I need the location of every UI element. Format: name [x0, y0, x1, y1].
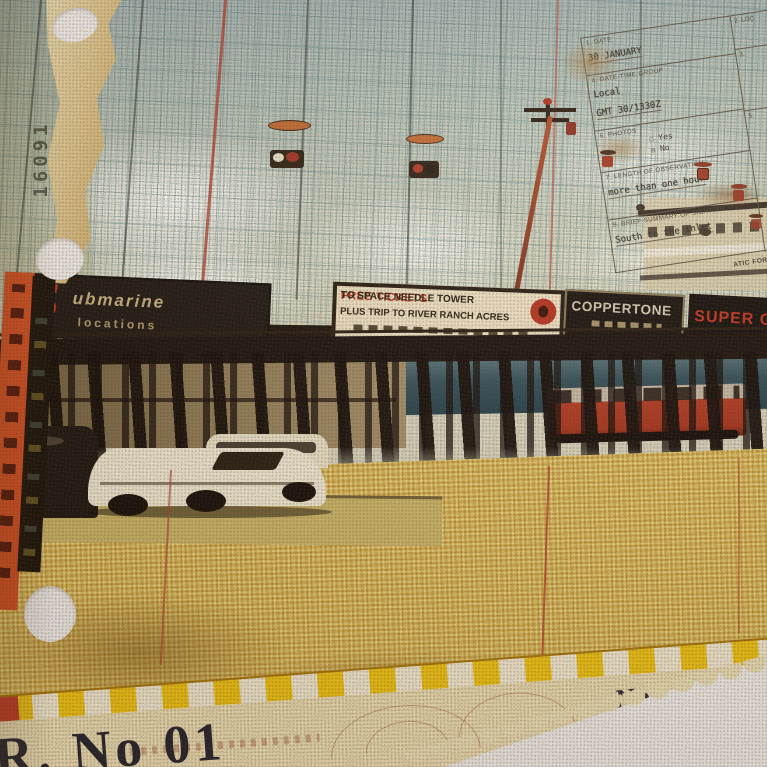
ink-speck — [700, 228, 711, 236]
billboard-text: ubmarine — [72, 289, 165, 313]
sky-ride-gondola — [733, 190, 744, 201]
billboard-text-line: PLUS TRIP TO RIVER RANCH ACRES — [340, 306, 530, 324]
red-ledger-rule — [738, 458, 740, 633]
gondola-passenger — [273, 153, 284, 162]
sky-ride-gondola-canopy — [694, 162, 712, 167]
paper-stain — [560, 42, 620, 84]
billboard-text-line: FREE TICKETS TO SPACE NEEDLE TOWER — [341, 290, 531, 297]
field-value: Local — [593, 87, 621, 101]
sky-ride-gondola — [751, 219, 761, 229]
car-side-trim — [100, 482, 314, 485]
sky-ride-gondola — [697, 168, 709, 180]
gondola-passenger — [413, 164, 423, 173]
sky-ride-gondola — [566, 122, 576, 135]
sky-ride-gondola-canopy — [731, 184, 747, 189]
billboard-text: COPPERTONE — [571, 298, 672, 318]
pier-crossbeam — [16, 398, 396, 402]
sky-ride-gondola — [602, 156, 613, 167]
car-shadow — [86, 506, 332, 518]
sky-ride-tower-crossarm — [524, 108, 576, 112]
sky-ride-gondola-canopy — [749, 214, 763, 218]
field-label: 1. DATE — [585, 19, 726, 47]
paper-stain — [694, 182, 766, 208]
sky-ride-gondola-canopy — [406, 134, 444, 144]
car-windshield — [211, 452, 285, 470]
sky-ride-gondola-canopy — [600, 150, 616, 155]
car-wheel — [282, 482, 316, 502]
form-right-column-row: 2. LOC — [730, 1, 767, 50]
billboard-text: locations — [77, 315, 157, 332]
sky-ride-gondola-canopy — [268, 120, 311, 131]
balloon-logo-icon — [530, 298, 557, 325]
tower-beacon — [543, 98, 552, 105]
gondola-passenger — [425, 165, 435, 174]
gondola-passenger — [286, 152, 299, 162]
ink-speck — [636, 204, 645, 211]
ledger-rule — [500, 0, 502, 290]
logo-detail — [538, 305, 548, 317]
hole-punch — [24, 586, 76, 642]
field-value: GMT 30/1330Z — [596, 100, 662, 120]
collage-page-photo: 16091 PROJE 1. DATE 30 JANUARY 4. DATE-T… — [0, 0, 767, 767]
